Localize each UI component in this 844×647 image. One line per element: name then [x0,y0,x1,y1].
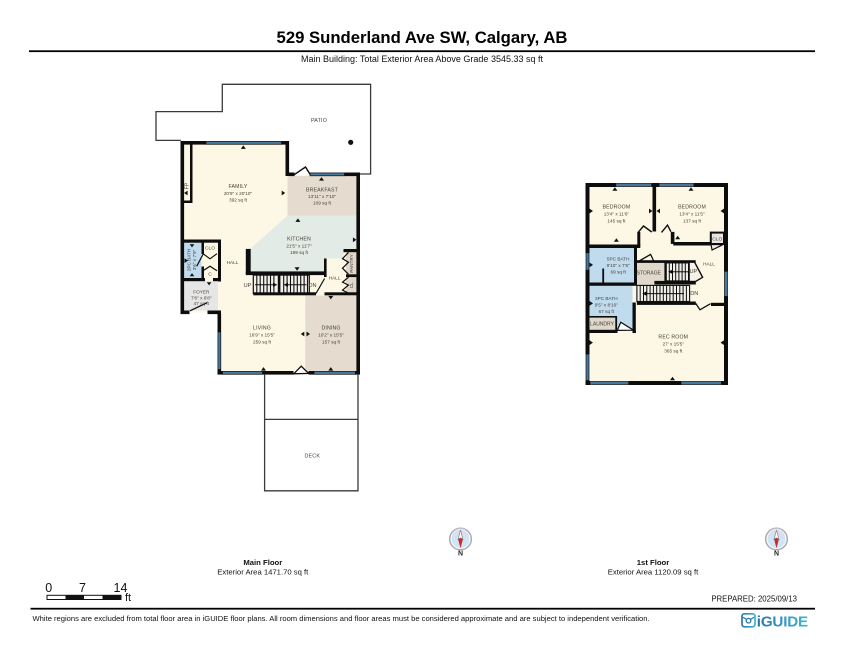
svg-text:HALL: HALL [329,276,341,281]
svg-text:CL: CL [349,282,354,288]
svg-text:13'4" x 11'6": 13'4" x 11'6" [604,212,630,217]
svg-text:HALL: HALL [703,261,715,266]
svg-text:109 sq ft: 109 sq ft [313,201,332,206]
svg-text:365 sq ft: 365 sq ft [664,348,683,353]
svg-text:47 sq ft: 47 sq ft [194,301,210,306]
svg-text:9'5" x 8'10": 9'5" x 8'10" [595,303,618,308]
svg-text:2PC BATH: 2PC BATH [187,249,192,272]
svg-text:13'11" x 7'10": 13'11" x 7'10" [308,194,336,199]
svg-text:27' x 15'5": 27' x 15'5" [663,342,685,347]
svg-text:Main Floor: Main Floor [243,558,282,567]
svg-text:UP: UP [244,283,252,289]
svg-text:PATIO: PATIO [311,118,327,124]
svg-text:Main Building: Total Exterior: Main Building: Total Exterior Area Above… [301,54,543,64]
svg-text:LIVING: LIVING [253,326,271,332]
svg-text:BEDROOM: BEDROOM [678,205,706,211]
svg-text:REC ROOM: REC ROOM [658,335,688,341]
svg-text:DN: DN [308,283,316,289]
svg-text:137 sq ft: 137 sq ft [683,218,702,223]
svg-text:5PC BATH: 5PC BATH [607,257,630,262]
svg-text:LAUNDRY: LAUNDRY [590,321,614,327]
svg-text:HALL: HALL [227,260,239,265]
svg-text:N: N [458,551,463,558]
svg-text:KITCHEN: KITCHEN [287,237,311,243]
svg-text:CLO: CLO [205,246,215,252]
svg-text:BREAKFAST: BREAKFAST [306,187,339,193]
svg-text:N: N [774,551,779,558]
svg-text:Exterior Area 1471.70 sq ft: Exterior Area 1471.70 sq ft [217,567,309,576]
svg-text:0: 0 [45,581,52,595]
svg-text:STORAGE: STORAGE [637,271,662,277]
svg-text:13'4" x 11'5": 13'4" x 11'5" [679,212,705,217]
svg-text:67 sq ft: 67 sq ft [599,309,615,314]
svg-text:FP: FP [185,182,191,189]
svg-text:7: 7 [79,581,86,595]
svg-text:FOYER: FOYER [193,289,210,294]
svg-text:157 sq ft: 157 sq ft [322,339,341,344]
svg-text:3'6" x 7'9": 3'6" x 7'9" [192,249,197,270]
svg-text:ft: ft [125,592,131,604]
svg-text:DINING: DINING [321,326,340,332]
svg-text:16'9" x 15'5": 16'9" x 15'5" [249,333,275,338]
svg-text:145 sq ft: 145 sq ft [607,218,626,223]
svg-text:CLO: CLO [712,237,722,243]
svg-text:C: C [208,271,212,277]
svg-text:PREPARED: 2025/09/13: PREPARED: 2025/09/13 [711,595,797,604]
svg-text:7'6" x 6'8": 7'6" x 6'8" [191,295,212,300]
svg-text:1st Floor: 1st Floor [637,558,669,567]
svg-text:iGUIDE: iGUIDE [757,613,808,630]
svg-text:PANTRY: PANTRY [349,253,354,272]
svg-text:FAMILY: FAMILY [229,184,248,190]
svg-text:White regions are excluded fro: White regions are excluded from total fl… [33,614,650,623]
svg-text:DECK: DECK [305,454,321,460]
svg-text:BEDROOM: BEDROOM [602,205,630,211]
svg-text:259 sq ft: 259 sq ft [253,339,272,344]
svg-text:DN: DN [690,291,698,297]
svg-text:392 sq ft: 392 sq ft [229,197,248,202]
svg-text:20'9" x 20'10": 20'9" x 20'10" [224,191,253,196]
svg-text:10'2" x 15'5": 10'2" x 15'5" [318,333,344,338]
svg-text:Exterior Area 1120.09 sq ft: Exterior Area 1120.09 sq ft [608,567,699,576]
svg-text:9'10" x 7'5": 9'10" x 7'5" [607,263,630,268]
svg-text:69 sq ft: 69 sq ft [611,270,627,275]
svg-text:3PC BATH: 3PC BATH [595,296,618,301]
svg-text:199 sq ft: 199 sq ft [290,250,309,255]
svg-text:529 Sunderland Ave SW, Calgary: 529 Sunderland Ave SW, Calgary, AB [277,28,568,47]
svg-text:21'5" x 11'7": 21'5" x 11'7" [286,243,312,248]
svg-text:UP: UP [690,269,698,275]
